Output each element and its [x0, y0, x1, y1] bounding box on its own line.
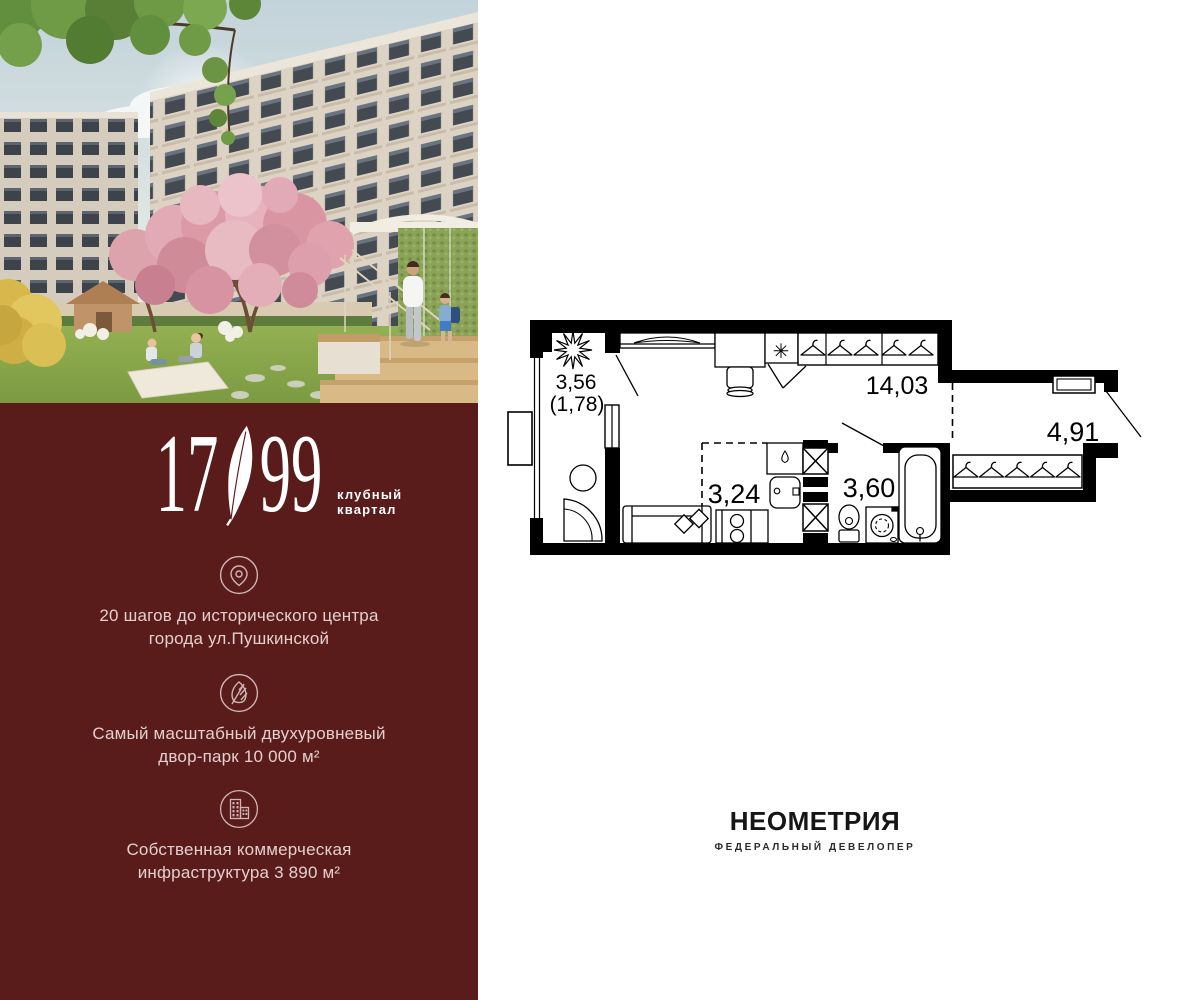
brand-panel: 17 99 клубный квартал	[0, 0, 478, 1000]
location-pin-icon	[219, 555, 259, 595]
logo-number-right: 99	[260, 424, 323, 524]
label-living-area: 14,03	[866, 372, 929, 400]
wardrobe	[798, 333, 938, 365]
label-bathroom-area: 3,60	[843, 473, 896, 503]
kitchen-counter	[620, 333, 798, 397]
feature-commerce: Собственная коммерческая инфраструктура …	[0, 789, 478, 884]
feature-commerce-line1: Собственная коммерческая	[0, 838, 478, 861]
developer-subtitle: ФЕДЕРАЛЬНЫЙ ДЕВЕЛОПЕР	[688, 842, 942, 853]
vent-shaft	[803, 448, 828, 531]
flyer-canvas: 17 99 клубный квартал	[0, 0, 1200, 1000]
faucet	[793, 488, 799, 495]
tall-cabinet	[715, 333, 765, 367]
window-sill	[508, 412, 532, 465]
tagline-line2: квартал	[337, 502, 397, 517]
logo-row: 17 99	[0, 424, 478, 528]
feature-location-line1: 20 шагов до исторического центра	[0, 604, 478, 627]
courtyard-photo	[0, 0, 478, 403]
sofa	[623, 506, 711, 543]
label-kitchen-area: 3,24	[708, 479, 761, 509]
burner	[731, 515, 744, 528]
cabinet-door-swing-b	[783, 366, 806, 388]
buildings-icon	[219, 789, 259, 829]
floorplan: ✳	[500, 310, 1160, 570]
tagline-line1: клубный	[337, 487, 402, 502]
developer-name: НЕОМЕТРИЯ	[688, 806, 942, 837]
feature-location-line2: города ул.Пушкинской	[0, 627, 478, 650]
feature-park-line1: Самый масштабный двухуровневый	[0, 722, 478, 745]
brand-logo: 17 99 клубный квартал	[0, 424, 478, 534]
feature-park-line2: двор-парк 10 000 м²	[0, 745, 478, 768]
loggia	[554, 331, 602, 541]
leaf-icon	[219, 673, 259, 713]
stove-symbol: ✳	[773, 341, 790, 363]
burner	[731, 530, 744, 543]
cabinet-door-swing-a	[768, 364, 783, 388]
label-hallway-area: 4,91	[1047, 417, 1100, 447]
loggia-chair	[564, 499, 602, 541]
chair	[727, 367, 753, 388]
courtyard-photo-svg	[0, 0, 478, 403]
label-loggia-area: 3,56	[556, 371, 597, 394]
loggia-table	[570, 465, 596, 491]
bathroom-door-swing	[842, 423, 884, 446]
entry-door-swing	[1106, 391, 1141, 437]
feature-location: 20 шагов до исторического центра города …	[0, 555, 478, 650]
label-loggia-area-reduced: (1,78)	[550, 393, 605, 416]
plant-icon	[554, 331, 592, 369]
logo-tagline: клубный квартал	[337, 487, 402, 517]
developer-logo: НЕОМЕТРИЯ ФЕДЕРАЛЬНЫЙ ДЕВЕЛОПЕР	[688, 806, 942, 853]
balcony-door-swing	[616, 355, 638, 396]
feather-icon	[217, 422, 261, 528]
feature-park: Самый масштабный двухуровневый двор-парк…	[0, 673, 478, 768]
feature-commerce-line2: инфраструктура 3 890 м²	[0, 861, 478, 884]
logo-number-left: 17	[156, 424, 219, 524]
